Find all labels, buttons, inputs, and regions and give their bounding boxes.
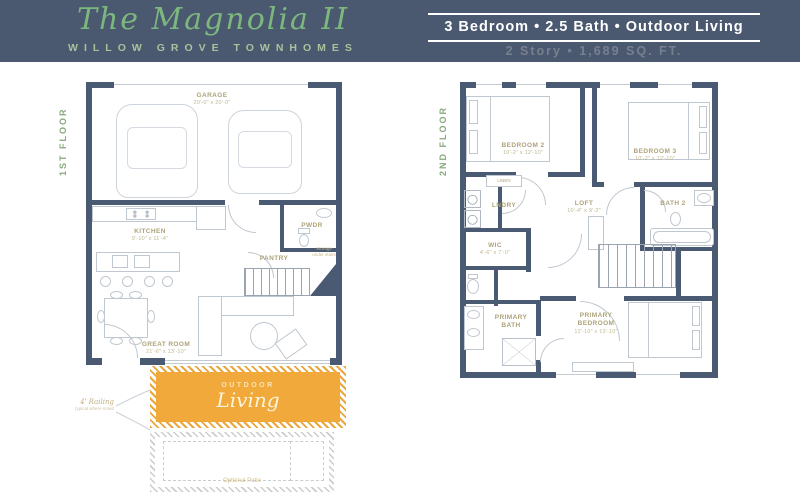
outdoor-living-area: OUTDOOR Living — [150, 366, 346, 428]
window-opening — [636, 372, 680, 378]
room-name: BEDROOM 3 — [634, 148, 677, 155]
chair-icon — [110, 291, 123, 299]
pillow-icon — [692, 306, 700, 326]
room-name: BATH 2 — [660, 200, 685, 207]
room-label-pantry: PANTRY — [244, 255, 304, 263]
leader-line — [114, 388, 152, 432]
room-label-wic: WIC 4'-6" x 7'-0" — [468, 242, 522, 258]
dresser-icon — [572, 362, 634, 372]
room-label-loft: LOFT 10'-4" x 9'-2" — [556, 200, 612, 216]
specs-line: 3 Bedroom • 2.5 Bath • Outdoor Living — [420, 19, 768, 35]
room-name: PWDR — [301, 222, 322, 229]
under-stair-wall — [310, 264, 336, 296]
front-door-opening — [102, 358, 140, 365]
sink-icon — [134, 255, 150, 268]
room-label-great-room: GREAT ROOM 21'-6" x 13'-10" — [118, 341, 214, 357]
wall-segment — [86, 82, 92, 365]
window-line — [600, 84, 630, 85]
car-icon — [228, 110, 302, 194]
patio-note: Optional Patio — [197, 477, 287, 485]
room-dims: 9'-10" x 11'-4" — [110, 236, 190, 243]
stool-icon — [162, 276, 173, 287]
stairs-icon — [244, 268, 310, 296]
railing-note-line1: 4' Railing — [38, 398, 114, 406]
window-line — [516, 84, 546, 85]
room-dims: 21'-6" x 13'-10" — [118, 349, 214, 356]
toilet-icon — [670, 212, 681, 226]
stool-icon — [122, 276, 133, 287]
door-arc — [540, 338, 564, 362]
room-label-garage: GARAGE 20'-0" x 20'-0" — [152, 92, 272, 108]
side-table-icon — [275, 328, 308, 359]
room-label-linen: LINEN — [488, 178, 520, 184]
door-arc — [548, 234, 582, 268]
sink-icon — [316, 208, 332, 218]
room-label-lndry: LNDRY — [484, 202, 524, 210]
chair-icon — [97, 310, 105, 323]
room-label-kitchen: KITCHEN 9'-10" x 11'-4" — [110, 228, 190, 244]
dryer-icon — [464, 210, 481, 228]
wall-segment — [592, 88, 597, 187]
window-opening — [556, 372, 596, 378]
room-label-primary-bedroom: PRIMARY BEDROOM 12'-10" x 13'-10" — [564, 312, 628, 336]
outdoor-living-word2: Living — [156, 388, 340, 412]
second-floor-label: 2ND FLOOR — [438, 90, 448, 176]
room-name: PRIMARY BATH — [495, 314, 528, 329]
garage-door-opening — [114, 82, 308, 88]
floorplan-sheet: The Magnolia II WILLOW GROVE TOWNHOMES 3… — [0, 0, 800, 500]
divider-line-bottom — [428, 40, 760, 42]
room-label-pwdr: PWDR — [290, 222, 334, 230]
room-dims: 20'-0" x 20'-0" — [152, 100, 272, 107]
bathtub-inner — [653, 231, 711, 243]
window-opening — [516, 82, 546, 88]
car-cabin — [238, 131, 293, 169]
room-name: KITCHEN — [134, 228, 166, 235]
stairs-icon — [598, 244, 676, 288]
room-dims: 10'-2" x 12'-10" — [608, 156, 702, 163]
stool-icon — [100, 276, 111, 287]
room-name: GARAGE — [197, 92, 228, 99]
room-dims: 10'-4" x 9'-2" — [556, 208, 612, 215]
wall-segment — [86, 200, 342, 205]
patio-inner: Optional Patio — [155, 437, 329, 487]
washer-icon — [464, 190, 481, 208]
room-name: GREAT ROOM — [142, 341, 190, 348]
storage-note: Storage under stairs — [310, 246, 338, 258]
pillow-icon — [692, 330, 700, 350]
room-label-primary-bath: PRIMARY BATH — [488, 314, 534, 331]
room-name: PRIMARY BEDROOM — [578, 312, 615, 327]
sink-icon — [697, 193, 711, 203]
pillow-icon — [469, 100, 478, 124]
header-banner: The Magnolia II WILLOW GROVE TOWNHOMES 3… — [0, 0, 800, 62]
room-label-bedroom2: BEDROOM 2 10'-2" x 12'-10" — [476, 142, 570, 158]
room-dims: 10'-2" x 12'-10" — [476, 150, 570, 157]
stove-icon — [126, 208, 156, 220]
pillow-icon — [699, 106, 707, 128]
coffee-table-icon — [250, 322, 278, 350]
sink-icon — [467, 310, 480, 319]
wall-segment — [580, 88, 585, 176]
optional-patio-area: Optional Patio — [150, 432, 334, 492]
room-dims: 4'-6" x 7'-0" — [468, 250, 522, 257]
railing-annotation: 4' Railing typical where noted — [38, 398, 114, 411]
room-dims: 12'-10" x 13'-10" — [564, 329, 628, 336]
sink-icon — [467, 328, 480, 337]
first-floor-label: 1ST FLOOR — [58, 90, 68, 176]
window-opening — [600, 82, 630, 88]
sink-icon — [112, 255, 128, 268]
wall-segment — [676, 251, 681, 297]
chair-icon — [129, 291, 142, 299]
car-icon — [116, 104, 198, 198]
wall-segment — [460, 228, 530, 232]
logo-title: The Magnolia II — [28, 2, 398, 37]
railing-note-line2: typical where noted — [38, 406, 114, 411]
fridge-icon — [196, 206, 226, 230]
room-label-bedroom3: BEDROOM 3 10'-2" x 12'-10" — [608, 148, 702, 164]
room-name: LOFT — [575, 200, 594, 207]
slider-line — [165, 363, 330, 364]
patio-dashed-outline — [290, 441, 324, 481]
window-line — [636, 374, 680, 375]
door-arc — [228, 205, 256, 233]
details-line: 2 Story • 1,689 SQ. FT. — [420, 44, 768, 58]
wall-segment — [540, 296, 718, 301]
toilet-icon — [299, 234, 309, 247]
room-label-bath2: BATH 2 — [652, 200, 694, 208]
room-name: WIC — [488, 242, 502, 249]
patio-dashed-outline — [163, 441, 291, 481]
wall-segment — [460, 300, 540, 304]
shower-icon — [502, 338, 536, 366]
window-line — [658, 84, 692, 85]
room-name: PANTRY — [260, 255, 288, 262]
outdoor-living-fill: OUTDOOR Living — [156, 372, 340, 422]
room-name: BEDROOM 2 — [502, 142, 545, 149]
window-line — [476, 84, 502, 85]
logo-subtitle: WILLOW GROVE TOWNHOMES — [28, 42, 398, 54]
chair-icon — [147, 310, 155, 323]
wall-segment — [280, 200, 284, 252]
stool-icon — [144, 276, 155, 287]
toilet-icon — [467, 279, 479, 294]
garage-door-line — [114, 84, 308, 85]
divider-line-top — [428, 13, 760, 15]
car-cabin — [127, 127, 188, 169]
blanket-line — [648, 303, 649, 357]
window-opening — [476, 82, 502, 88]
wall-segment — [336, 82, 342, 365]
window-line — [556, 374, 596, 375]
room-name: LNDRY — [492, 202, 516, 209]
slider-line — [165, 360, 330, 361]
bed-icon — [628, 302, 702, 358]
window-opening — [658, 82, 692, 88]
